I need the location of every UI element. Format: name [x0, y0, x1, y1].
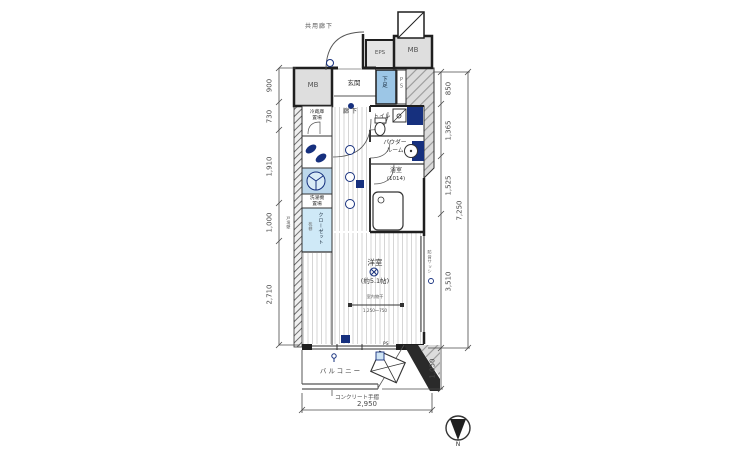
dim-left-1910: 1,910 — [267, 149, 276, 185]
storage-cabinet — [407, 107, 423, 125]
party-wall-left — [294, 106, 302, 347]
label-mb-right: MB — [400, 47, 426, 55]
dim-balcony-depth: 1,050 — [430, 351, 439, 387]
label-eps: EPS — [368, 50, 392, 56]
label-mb-left: MB — [300, 82, 326, 90]
dim-left-1000: 1,000 — [267, 205, 276, 241]
sash-lock-icon — [341, 335, 350, 343]
compass-icon — [446, 416, 470, 440]
label-corridor: 廊下 — [338, 109, 364, 116]
label-common-corridor: 共用廊下 — [305, 24, 333, 31]
label-ps-entrance: PS — [398, 77, 404, 90]
label-fridge-2: 置場 — [303, 116, 331, 121]
hanger-rail-end — [400, 303, 404, 307]
label-ps-window: PS — [383, 343, 389, 348]
dim-right-total: 7,250 — [457, 193, 466, 229]
hanger-rail-end — [348, 303, 352, 307]
label-powder-2: ルーム — [377, 148, 413, 154]
dim-right-850: 850 — [446, 71, 455, 107]
dim-bottom-width: 2,950 — [340, 401, 394, 409]
label-closet: クローゼット — [317, 212, 323, 245]
label-compass-n: N — [453, 442, 463, 449]
label-window-note: 防音サッシ — [427, 250, 432, 273]
dim-left-730: 730 — [267, 99, 276, 135]
faucet-icon — [332, 354, 336, 358]
label-room-size: (約5.1帖) — [349, 278, 401, 285]
entrance-marker-icon — [327, 60, 334, 67]
dim-right-1365: 1,365 — [446, 113, 455, 149]
corridor-floor — [334, 107, 369, 231]
wall — [302, 344, 312, 350]
label-washer-2: 置場 — [303, 202, 331, 207]
room-floor — [333, 233, 423, 344]
downlight-icon — [346, 173, 355, 182]
bathtub-icon — [373, 192, 403, 230]
downlight-icon — [346, 146, 355, 155]
downlight-icon — [346, 200, 355, 209]
label-powder-1: パウダー — [377, 140, 413, 146]
toilet-bowl-icon — [375, 123, 385, 136]
dim-right-3510: 3,510 — [446, 264, 455, 300]
dim-right-1525: 1,525 — [446, 168, 455, 204]
label-washer-1: 洗濯機 — [303, 196, 331, 201]
water-heater-box — [376, 352, 384, 360]
label-shoe-cabinet: 下足 — [381, 76, 387, 88]
window-note-mark — [429, 279, 434, 284]
label-party-wall: 戸境壁 — [286, 216, 290, 230]
dim-left-2710: 2,710 — [267, 277, 276, 313]
label-balcony: バルコニー — [316, 368, 366, 375]
label-bath: 浴室 — [381, 168, 411, 175]
room-floor-left — [303, 253, 332, 344]
label-hanger: 室内物干 — [352, 295, 398, 300]
label-room-name: 洋室 — [353, 259, 397, 267]
label-closet-shelf: 枕棚 — [308, 222, 312, 231]
label-toilet: トイレ — [370, 114, 394, 120]
label-bath-size: (1014) — [381, 176, 411, 182]
water-heater-remote — [356, 180, 364, 188]
label-fridge-1: 冷蔵庫 — [303, 110, 331, 115]
floor-plan: 共用廊下 MB EPS MB 玄関 下足 PS 廊下 トイレ パウダー ルーム … — [0, 0, 730, 470]
label-entrance: 玄関 — [340, 80, 368, 87]
label-hanger-range: 1,250～750 — [352, 309, 398, 314]
